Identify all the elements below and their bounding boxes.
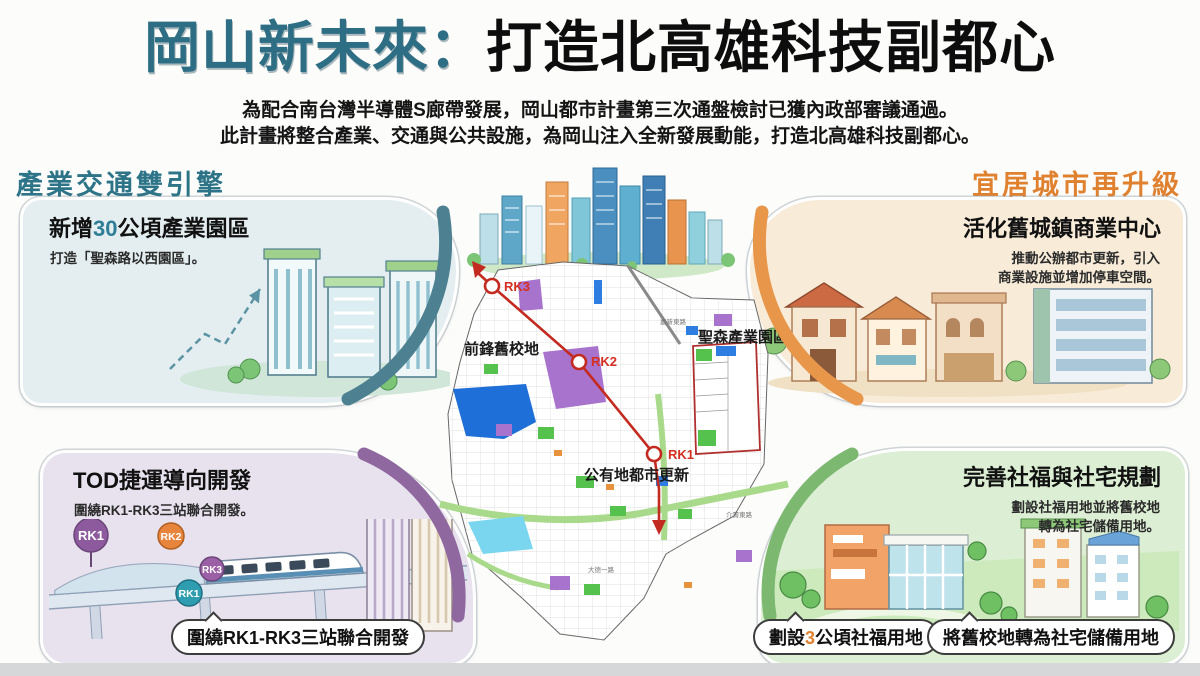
welfare-callout1-pre: 劃設 xyxy=(769,628,805,648)
panel-industry: 新增30公頃產業園區 打造「聖森路以西園區」。 xyxy=(20,197,459,406)
office-tower-2 xyxy=(324,277,384,377)
svg-text:RK1: RK1 xyxy=(78,528,104,543)
intro-text: 為配合南台灣半導體S廊帶發展，岡山都市計畫第三次通盤檢討已獲內政部審議通過。 此… xyxy=(0,98,1200,150)
panel-livable: 活化舊城鎮商業中心 推動公辦都市更新，引入 商業設施並增加停車空間。 xyxy=(747,197,1186,406)
page-title-main: 打造北高雄科技副都心 xyxy=(486,16,1056,79)
industry-title-number: 30 xyxy=(93,216,117,241)
zoning-map: RK3 RK2 RK1 前鋒舊校地 聖森產業園區 公有地都市更新 嘉新東路 介壽… xyxy=(438,254,790,650)
livable-card-desc-2: 商業設施並增加停車空間。 xyxy=(998,266,1160,286)
map-label-industrial-park: 聖森產業園區 xyxy=(698,328,788,346)
map-road-label-2: 介壽東路 xyxy=(726,510,753,519)
industry-title-post: 公頃產業園區 xyxy=(118,216,250,241)
intro-line-2: 此計畫將整合產業、交通與公共設施，為岡山注入全新發展動能，打造北高雄科技副都心。 xyxy=(0,124,1200,150)
welfare-callout1-number: 3 xyxy=(805,628,815,648)
office-tower-1 xyxy=(264,249,320,375)
welfare-callout-pill-1: 劃設3公頃社福用地 xyxy=(753,619,939,655)
welfare-building xyxy=(825,525,968,609)
tod-card-desc: 圍繞RK1-RK3三站聯合開發。 xyxy=(74,499,254,519)
shophouse-2 xyxy=(862,297,930,381)
panel-tod: TOD捷運導向開發 圍繞RK1-RK3三站聯合開發。 xyxy=(40,450,476,666)
tod-callout-pill: 圍繞RK1-RK3三站聯合開發 xyxy=(171,619,425,655)
page-title: 岡山新未來：打造北高雄科技副都心 xyxy=(0,16,1200,80)
station-marker-rk3 xyxy=(485,279,499,293)
panel-welfare: 完善社福與社宅規劃 劃設社福用地並將舊校地 轉為社宅儲備用地。 xyxy=(758,448,1188,666)
modern-building xyxy=(1034,289,1152,383)
map-road-label-1: 嘉新東路 xyxy=(660,317,687,326)
industry-illustration xyxy=(150,219,450,399)
station-badge-rk1-teal: RK1 xyxy=(176,580,202,606)
station-badge-rk3: RK3 xyxy=(200,557,224,581)
station-marker-rk1 xyxy=(647,447,661,461)
infographic-page: 岡山新未來：打造北高雄科技副都心 為配合南台灣半導體S廊帶發展，岡山都市計畫第三… xyxy=(0,0,1200,676)
intro-line-1: 為配合南台灣半導體S廊帶發展，岡山都市計畫第三次通盤檢討已獲內政部審議通過。 xyxy=(0,98,1200,124)
map-road-label-3: 大德一路 xyxy=(588,565,615,574)
shophouse-1 xyxy=(786,283,862,381)
industry-card-title: 新增30公頃產業園區 xyxy=(49,211,250,243)
station-badge-rk2: RK2 xyxy=(158,523,184,549)
industry-title-pre: 新增 xyxy=(49,216,93,241)
map-label-rk1: RK1 xyxy=(668,447,694,462)
station-marker-rk2 xyxy=(572,355,586,369)
map-label-rk2: RK2 xyxy=(591,354,617,369)
welfare-card-desc-2: 轉為社宅儲備用地。 xyxy=(1039,515,1161,535)
office-tower-3 xyxy=(386,261,440,377)
livable-card-desc-1: 推動公辦都市更新，引入 xyxy=(1012,247,1161,267)
page-title-highlight: 岡山新未來： xyxy=(144,16,486,79)
map-label-rk3: RK3 xyxy=(504,279,530,294)
welfare-callout1-post: 公頃社福用地 xyxy=(815,628,923,648)
industry-card-desc: 打造「聖森路以西園區」。 xyxy=(50,247,205,267)
growth-arrow-icon xyxy=(170,289,263,369)
map-label-old-school: 前鋒舊校地 xyxy=(464,340,539,358)
livable-card-title: 活化舊城鎮商業中心 xyxy=(963,211,1161,243)
bottom-bar xyxy=(0,663,1200,676)
svg-text:RK1: RK1 xyxy=(178,588,199,600)
station-badge-rk1-purple: RK1 xyxy=(74,519,108,567)
svg-text:RK2: RK2 xyxy=(160,531,181,543)
industrial-park-zone xyxy=(693,342,760,454)
tod-card-title: TOD捷運導向開發 xyxy=(73,463,251,495)
svg-text:RK3: RK3 xyxy=(202,565,222,576)
welfare-card-title: 完善社福與社宅規劃 xyxy=(963,460,1161,492)
map-label-urban-renewal: 公有地都市更新 xyxy=(584,466,689,484)
welfare-callout-pill-2: 將舊校地轉為社宅儲備用地 xyxy=(927,619,1175,655)
welfare-card-desc-1: 劃設社福用地並將舊校地 xyxy=(1012,496,1161,516)
shophouse-3 xyxy=(932,293,1006,381)
